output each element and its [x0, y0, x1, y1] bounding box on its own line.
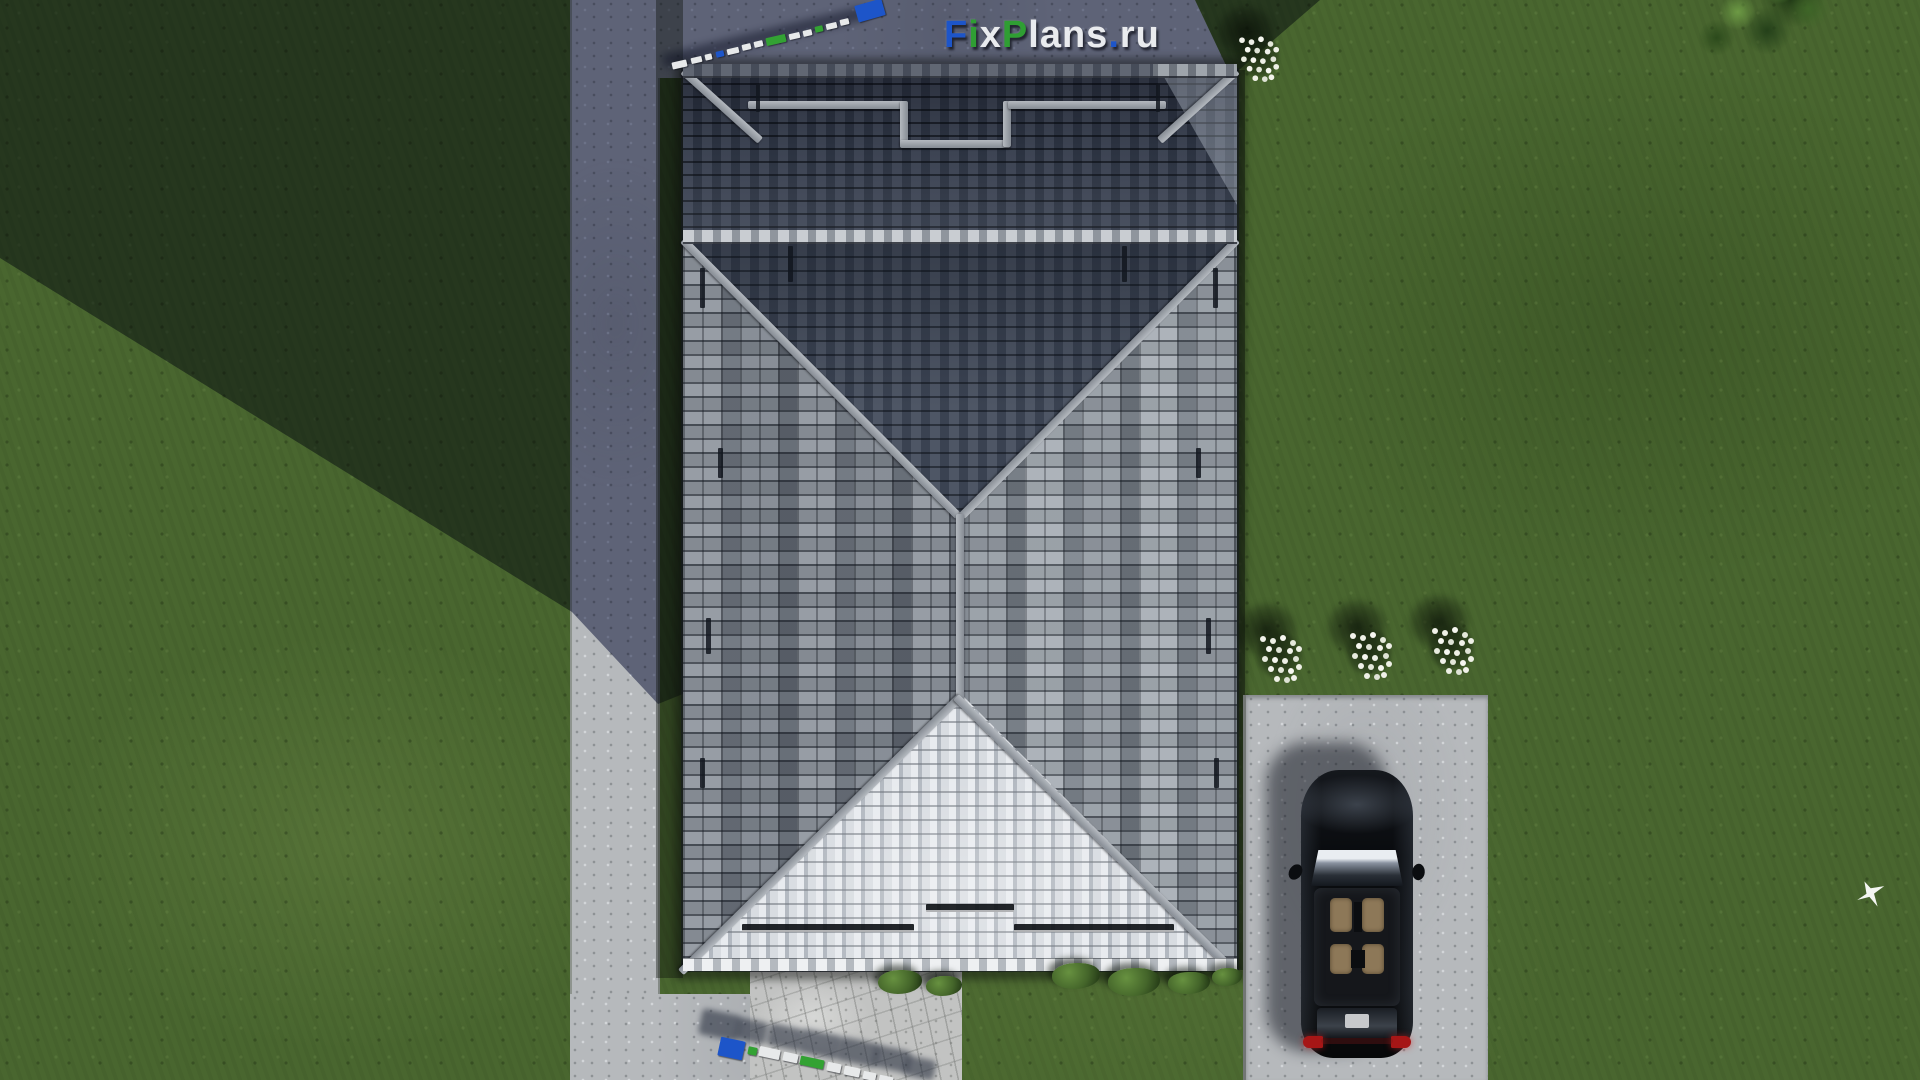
aerial-house-render: FixPlans.ru	[0, 0, 1920, 1080]
snow-guard	[1014, 924, 1174, 932]
car-seat-front-right	[1362, 898, 1384, 932]
wing-ridge-c	[1008, 101, 1166, 109]
roof-vent	[1213, 268, 1218, 308]
gutter-bottom	[683, 958, 1237, 971]
white-bird	[1852, 876, 1889, 912]
bush-flowers	[1239, 37, 1245, 43]
car-seat-rear-right	[1362, 944, 1384, 974]
roof-vent	[700, 268, 705, 308]
car-seat-front-left	[1330, 898, 1352, 932]
main-center-ridge	[956, 514, 964, 700]
roof-vent	[1196, 448, 1201, 478]
watermark-letter: F	[944, 14, 968, 56]
roof-vent	[756, 84, 760, 112]
watermark-logo: FixPlans.ru	[944, 16, 1160, 54]
black-car	[1301, 770, 1413, 1058]
hip-roof	[683, 70, 1237, 970]
roof-vent	[700, 758, 705, 788]
car-tail-bar	[1321, 1038, 1393, 1044]
bush-flowers	[1260, 636, 1266, 642]
flower-bush	[1248, 628, 1318, 698]
roof-vent	[788, 246, 793, 282]
gutter-mid	[683, 230, 1237, 244]
snow-guard	[742, 924, 914, 932]
watermark-letter: ru	[1120, 14, 1160, 56]
wing-ridge-a	[748, 101, 904, 109]
wing-ridge-b	[900, 140, 1010, 148]
gutter-top-shade	[683, 64, 1153, 76]
tree-canopy	[1679, 0, 1869, 84]
bush-flowers	[1350, 633, 1356, 639]
green-shrub	[1052, 963, 1100, 989]
roof-vent	[1206, 618, 1211, 654]
car-seat-rear-left	[1330, 944, 1352, 974]
green-shrub	[1108, 968, 1160, 996]
roof-wing-shadowed	[683, 70, 1237, 242]
watermark-block	[747, 1046, 757, 1056]
car-taillight-right	[1391, 1036, 1411, 1048]
car-parcel-shelf	[1345, 1014, 1369, 1028]
car-roof-glass	[1314, 888, 1400, 1006]
watermark-letter: .	[1108, 14, 1120, 56]
snow-guard	[926, 904, 1014, 912]
flower-bush	[1228, 30, 1295, 97]
bush-flowers	[1432, 628, 1438, 634]
watermark-letter: x	[980, 14, 1002, 56]
green-shrub	[1212, 968, 1242, 986]
watermark-letter: P	[1002, 14, 1028, 56]
watermark-block	[862, 1071, 876, 1080]
car-rear-window	[1317, 1008, 1397, 1038]
car-center-console	[1354, 902, 1362, 932]
roof-vent	[1156, 84, 1160, 112]
roof-vent	[706, 618, 711, 654]
green-shrub	[1168, 972, 1210, 994]
car-taillight-left	[1303, 1036, 1323, 1048]
car-windshield	[1311, 850, 1403, 886]
roof-vent	[1214, 758, 1219, 788]
watermark-letter: i	[968, 14, 980, 56]
flower-bush	[1338, 625, 1408, 695]
watermark-letter: lans	[1028, 14, 1108, 56]
roof-vent	[1122, 246, 1127, 282]
car-rear-console	[1351, 950, 1365, 968]
flower-bush	[1420, 620, 1490, 690]
roof-vent	[718, 448, 723, 478]
